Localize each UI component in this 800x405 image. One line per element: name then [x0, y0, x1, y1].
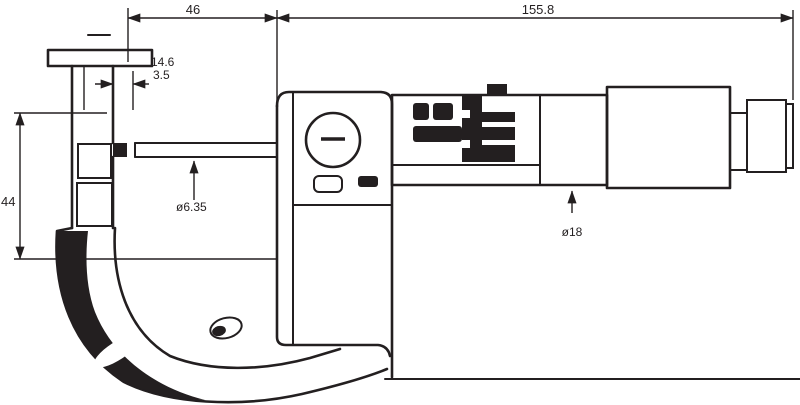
frame-grip-oval — [208, 314, 244, 342]
clamp-ring — [462, 95, 482, 162]
frame-print-mark-b — [433, 103, 453, 120]
clamp-knurl-block — [482, 112, 515, 162]
frame-top-cap — [48, 50, 152, 66]
housing-top-right-edge — [277, 92, 392, 377]
dim-label-top-left: 46 — [186, 2, 200, 17]
clamp-ring-notch-a — [462, 110, 470, 118]
origin-button — [314, 176, 342, 192]
thimble — [607, 87, 730, 188]
frame-outer-edge — [56, 228, 387, 402]
micrometer-technical-drawing: 46 155.8 44 14.6 3.5 ø6.35 ø18 — [0, 0, 800, 405]
clamp-knurl-groove-a — [482, 122, 515, 127]
insulating-plate-lower — [77, 183, 112, 226]
anvil — [113, 143, 127, 157]
dim-label-left-height: 44 — [1, 194, 15, 209]
micrometer-body — [48, 35, 800, 402]
connector-cover — [358, 176, 378, 187]
dimension-lines: 46 155.8 44 14.6 3.5 ø6.35 ø18 — [1, 2, 793, 259]
ratchet-end-cap — [786, 104, 793, 168]
frame-inner-edge — [115, 228, 340, 368]
drawing-canvas: 46 155.8 44 14.6 3.5 ø6.35 ø18 — [0, 0, 800, 405]
dim-label-anvil-depth: 14.6 — [151, 55, 175, 69]
clamp-ring-notch-b — [462, 140, 470, 148]
frame-print-mark-a — [413, 103, 429, 120]
dim-label-spindle-diameter: ø6.35 — [176, 200, 207, 214]
dim-label-tip-thickness: 3.5 — [153, 68, 170, 82]
thimble-step — [730, 113, 747, 170]
frame-print-mark-c — [413, 126, 462, 142]
dim-label-thimble-diameter: ø18 — [562, 225, 583, 239]
clamp-knurl-groove-b — [482, 140, 515, 145]
dim-label-top-right: 155.8 — [522, 2, 555, 17]
clamp-lever-tip — [487, 84, 507, 94]
ratchet-stop — [747, 100, 786, 172]
insulating-plate-upper — [78, 144, 111, 178]
